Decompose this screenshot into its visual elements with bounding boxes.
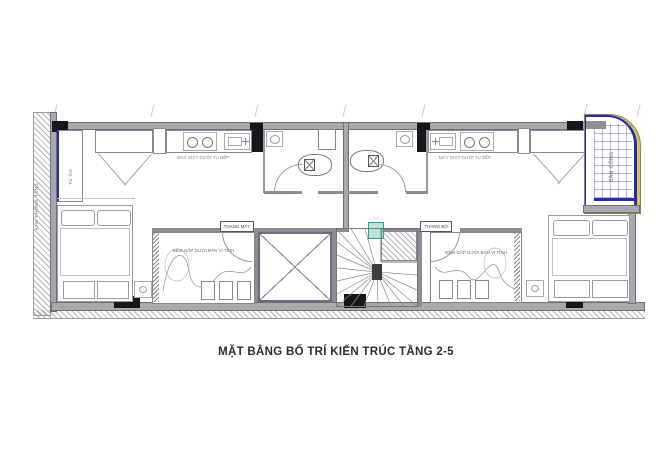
dimension-tick xyxy=(150,104,154,117)
cabinet-column-right xyxy=(518,128,530,154)
door-leaf-line xyxy=(98,153,126,185)
basin-icon xyxy=(270,135,280,144)
door-leaf-line xyxy=(557,154,585,184)
shower-left xyxy=(318,129,336,150)
sink-basin xyxy=(439,137,453,146)
decor-circle xyxy=(531,285,539,292)
dimension-tick xyxy=(342,104,346,117)
corridor-line-left xyxy=(57,198,135,199)
balcony-base-wall xyxy=(583,205,640,213)
nightstand-right xyxy=(526,280,544,297)
balcony-label: BAN CÔNG xyxy=(609,142,615,182)
door-leaf-line xyxy=(533,153,561,183)
washer-note-right: MÁY GIẶT DƯỚI TỦ BẾP xyxy=(430,155,500,160)
drawing-title: MẶT BẰNG BỐ TRÍ KIẾN TRÚC TẦNG 2-5 xyxy=(0,346,672,358)
stairs-label: THANG BỘ xyxy=(420,221,452,232)
decor-circle xyxy=(139,286,147,293)
burner-icon xyxy=(464,137,475,148)
dimension-tick xyxy=(254,104,258,117)
bed-right xyxy=(548,215,630,302)
toilet-left xyxy=(298,154,332,176)
wc-sink-left xyxy=(266,131,283,147)
wardrobe: TỦ ÁO xyxy=(57,130,83,202)
ventilation-shaft-label: KHE THÔNG TẦNG xyxy=(34,140,39,230)
bed-blanket xyxy=(60,228,130,276)
basin-icon xyxy=(400,135,410,144)
pillow xyxy=(553,220,590,236)
sink-basin xyxy=(228,137,242,146)
slat-band xyxy=(475,280,489,299)
bed-left xyxy=(57,205,133,302)
door-leaf-line xyxy=(124,154,152,186)
kitchen-sink-right xyxy=(430,133,456,150)
burner-icon xyxy=(187,137,198,148)
footboard-panel xyxy=(592,280,628,298)
wall-center xyxy=(343,122,349,232)
closet-hanging-right xyxy=(530,130,585,153)
wc-wall xyxy=(318,191,345,194)
burner-icon xyxy=(479,137,490,148)
wall-left xyxy=(50,112,57,312)
cabinet-column-left xyxy=(153,128,166,154)
stair-wall xyxy=(418,228,422,307)
floor-plan-page: { "title": "MẶT BẰNG BỐ TRÍ KIẾN TRÚC TẦ… xyxy=(0,0,672,475)
nightstand-left xyxy=(134,281,152,298)
faucet-icon xyxy=(432,141,439,142)
slat-band xyxy=(237,281,251,300)
stove-right xyxy=(460,132,494,151)
toilet-tank xyxy=(304,159,315,171)
footboard-panel xyxy=(97,281,129,299)
footboard-panel xyxy=(554,280,590,298)
balcony-tiles: BAN CÔNG xyxy=(594,124,632,198)
wc-wall xyxy=(406,191,428,194)
wardrobe-label: TỦ ÁO xyxy=(68,151,73,185)
closet-hanging-left xyxy=(95,130,153,153)
balcony-sill-blue xyxy=(594,198,634,201)
washer-note-left: MÁY GIẶT DƯỚI TỦ BẾP xyxy=(168,155,238,160)
slat-band xyxy=(457,280,471,299)
wc-wall xyxy=(263,130,265,193)
elevator-label: THANG MÁY xyxy=(220,221,254,232)
door-swing-arc xyxy=(378,164,406,192)
faucet-icon xyxy=(242,141,249,142)
bed-blanket xyxy=(552,238,627,276)
pillow xyxy=(97,210,131,226)
slat-band xyxy=(201,281,215,300)
pillow xyxy=(592,220,628,236)
wc-wall xyxy=(348,191,378,194)
kitchen-sink-left xyxy=(224,133,250,150)
wc-sink-right xyxy=(396,131,413,147)
stair-landing-hatch xyxy=(381,229,417,261)
dimension-tick xyxy=(421,104,425,117)
dimension-tick xyxy=(636,104,640,117)
slat-band xyxy=(219,281,233,300)
boundary-hatch-bottom xyxy=(33,310,645,319)
elevator-shaft xyxy=(258,232,332,302)
balcony-wall-seg xyxy=(586,121,606,129)
stove-left xyxy=(183,132,217,151)
burner-icon xyxy=(202,137,213,148)
door-swing-arc xyxy=(274,164,302,192)
slat-band xyxy=(439,280,453,299)
pillow xyxy=(61,210,95,226)
stair-entry-marker xyxy=(368,222,384,239)
footboard-panel xyxy=(63,281,95,299)
